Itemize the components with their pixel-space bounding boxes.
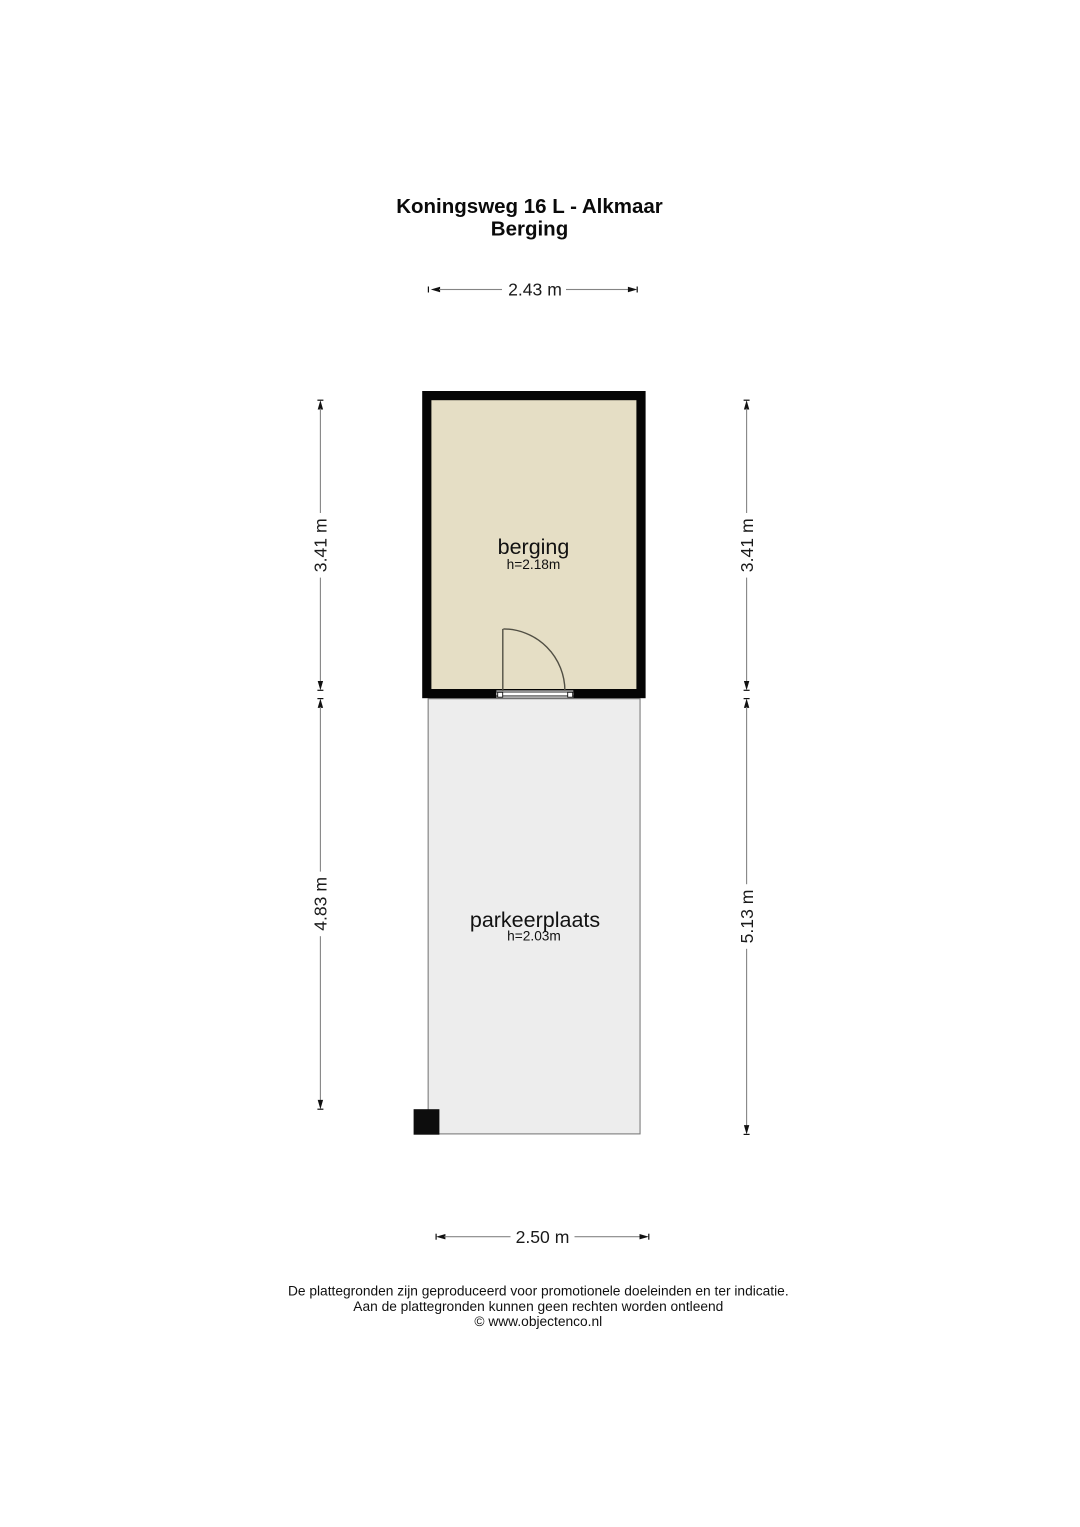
svg-text:berging: berging [498, 535, 570, 559]
svg-text:3.41 m: 3.41 m [311, 518, 331, 572]
svg-text:h=2.03m: h=2.03m [507, 929, 561, 944]
svg-text:Aan de plattegronden kunnen ge: Aan de plattegronden kunnen geen rechten… [353, 1299, 723, 1314]
svg-text:2.43 m: 2.43 m [508, 280, 562, 300]
svg-text:h=2.18m: h=2.18m [507, 557, 561, 572]
svg-text:2.50 m: 2.50 m [516, 1227, 570, 1247]
svg-text:3.41 m: 3.41 m [737, 518, 757, 572]
svg-text:4.83 m: 4.83 m [311, 877, 331, 931]
svg-text:5.13 m: 5.13 m [737, 890, 757, 944]
svg-text:Berging: Berging [491, 218, 568, 241]
svg-text:Koningsweg 16 L - Alkmaar: Koningsweg 16 L - Alkmaar [396, 195, 663, 218]
svg-text:© www.objectenco.nl: © www.objectenco.nl [474, 1314, 602, 1329]
svg-text:De plattegronden zijn geproduc: De plattegronden zijn geproduceerd voor … [288, 1283, 789, 1298]
